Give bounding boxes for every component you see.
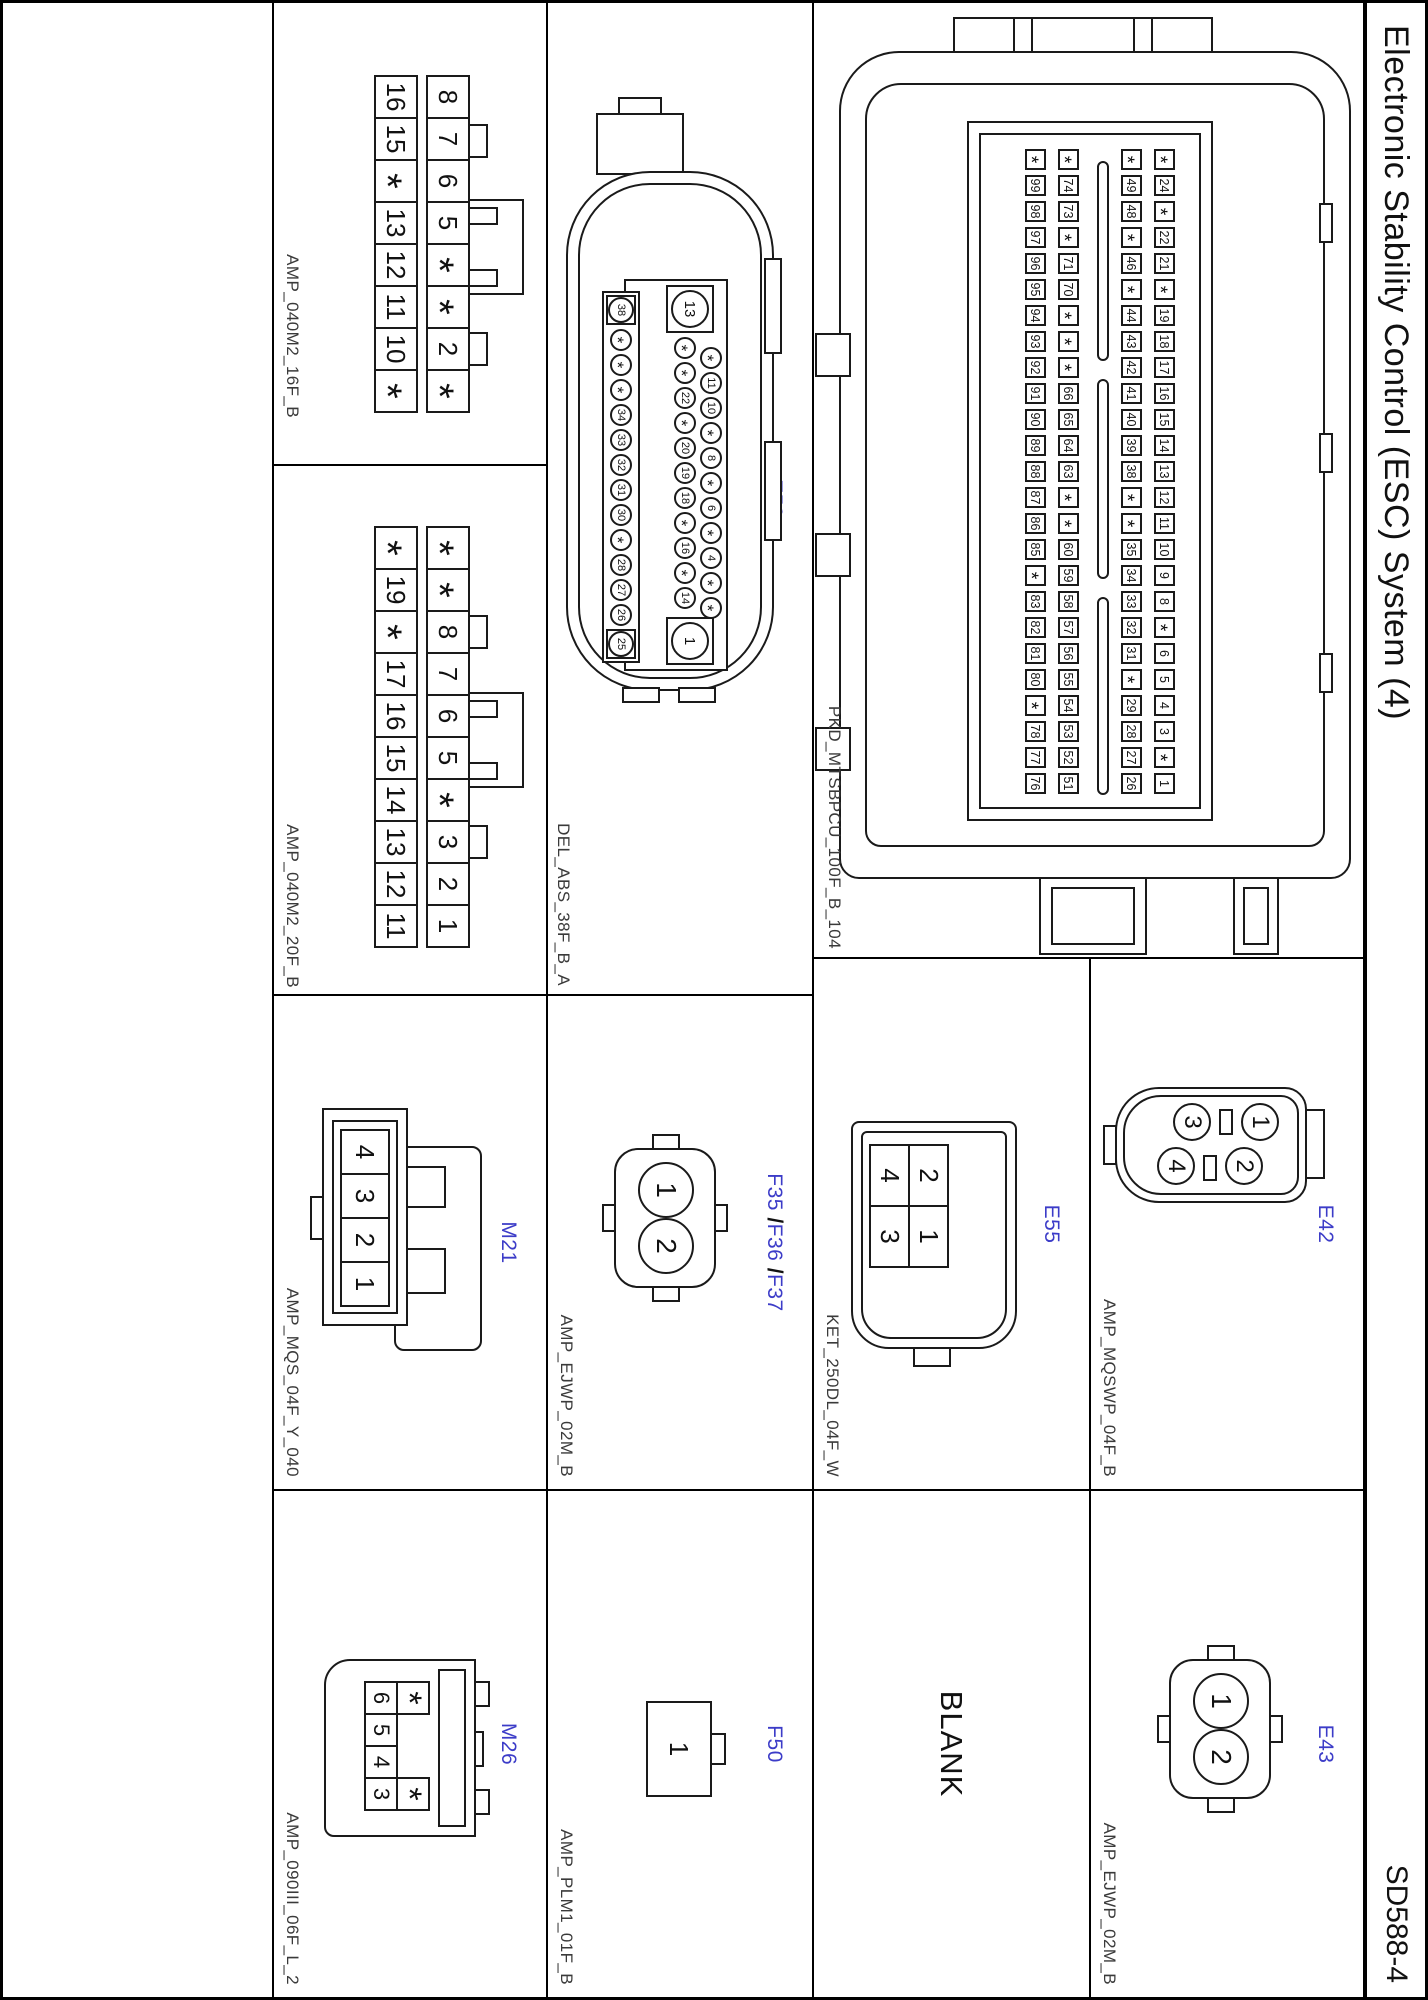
pin-blocked: *: [1058, 513, 1079, 534]
pin-19: 19: [674, 462, 696, 484]
m04a-top-tab: [468, 124, 488, 158]
pin-90: 90: [1025, 409, 1046, 430]
cell-clgb: CLG-B *24*2221*1918171615141312111098*65…: [812, 3, 1363, 959]
clgb-mount-leg-inner: [1051, 887, 1135, 945]
e42-key-slot: [1219, 1109, 1233, 1135]
clgb-key-slot: [1097, 379, 1109, 579]
clgb-top-clip: [1319, 433, 1333, 473]
pin-12: 12: [374, 243, 418, 287]
pin-16: 16: [374, 75, 418, 119]
document-code: SD588-4: [1379, 1865, 1413, 1997]
e43-bottom-tab: [1157, 1715, 1171, 1743]
connector-name-e42: E42: [1313, 959, 1337, 1489]
pin-34: 34: [610, 404, 632, 426]
pin-13: 13: [1154, 461, 1175, 482]
pin-22: 22: [674, 387, 696, 409]
m26-pin-row: 6543: [364, 1681, 398, 1811]
part-number-f50: AMP_PLM1_01F_B: [556, 1829, 576, 1985]
e59-pin-row-middle: **22*201918*16*14: [674, 337, 696, 609]
pin-3: 3: [364, 1777, 398, 1811]
e43-pin-1: 1: [1193, 1673, 1249, 1729]
pin-blocked: *: [1154, 279, 1175, 300]
pin-18: 18: [674, 487, 696, 509]
pin-13: 13: [374, 820, 418, 864]
page-title: Electronic Stability Control (ESC) Syste…: [1377, 3, 1416, 1865]
pin-blocked: *: [1154, 201, 1175, 222]
pin-18: 18: [1154, 331, 1175, 352]
pin-2: 2: [426, 862, 470, 906]
e59-right-tab: [678, 687, 716, 703]
pin-3: 3: [1154, 721, 1175, 742]
pin-8: 8: [700, 447, 722, 469]
part-number-f35: AMP_EJWP_02M_B: [556, 1315, 576, 1477]
m04b-key-notch: [468, 762, 498, 780]
part-number-clgb: PKD_MTSBPCU_100F_B_104: [824, 706, 844, 949]
pin-24: 24: [1154, 175, 1175, 196]
pin-16: 16: [674, 537, 696, 559]
clgb-pin-row-2: *4948*46*44434241403938**3534333231*2928…: [1121, 149, 1142, 794]
m26-top-tooth: [474, 1789, 490, 1815]
pin-88: 88: [1025, 461, 1046, 482]
e55-pin-4: 4: [869, 1144, 910, 1207]
pin-15: 15: [374, 736, 418, 780]
e42-key-slot: [1203, 1155, 1217, 1181]
pin-97: 97: [1025, 227, 1046, 248]
f50-top-notch: [710, 1733, 726, 1765]
cell-f35-f36-f37: F35 /F36 /F37 1 2 AMP_EJWP_02M_B: [546, 996, 812, 1491]
e55-pin-2: 2: [908, 1144, 949, 1207]
pin-33: 33: [610, 429, 632, 451]
e59-top-notch: [764, 258, 782, 354]
pin-blocked: *: [700, 522, 722, 544]
pin-99: 99: [1025, 175, 1046, 196]
e42-pin-4: 4: [1157, 1147, 1195, 1185]
part-number-m04b: AMP_040M2_20F_B: [282, 824, 302, 988]
pin-64: 64: [1058, 435, 1079, 456]
pin-16: 16: [374, 694, 418, 738]
pin-16: 16: [1154, 383, 1175, 404]
pin-11: 11: [700, 372, 722, 394]
cell-blank: BLANK: [812, 1491, 1089, 1997]
pin-42: 42: [1121, 357, 1142, 378]
clgb-pin-row-4: *999897969594939291908988878685*83828180…: [1025, 149, 1046, 794]
m04a-pin-row-bottom: 1615*13121110*: [374, 75, 418, 413]
pin-55: 55: [1058, 669, 1079, 690]
f50-pin-1: 1: [646, 1701, 712, 1797]
pin-17: 17: [1154, 357, 1175, 378]
pin-28: 28: [610, 554, 632, 576]
pin-80: 80: [1025, 669, 1046, 690]
pin-8: 8: [426, 610, 470, 654]
e55-lock-tab: [913, 1347, 951, 1367]
pin-91: 91: [1025, 383, 1046, 404]
e59-pin-1: 1: [666, 617, 714, 665]
e42-pin-1: 1: [1241, 1103, 1279, 1141]
pin-1: 1: [426, 904, 470, 948]
pin-11: 11: [1154, 513, 1175, 534]
pin-94: 94: [1025, 305, 1046, 326]
pin-blocked: *: [674, 412, 696, 434]
pin-blocked: *: [1121, 149, 1142, 170]
pin-73: 73: [1058, 201, 1079, 222]
pin-60: 60: [1058, 539, 1079, 560]
pin-74: 74: [1058, 175, 1079, 196]
pin-blocked: *: [426, 369, 470, 413]
pin-1: 1: [340, 1261, 390, 1307]
pin-blocked: *: [1121, 669, 1142, 690]
pin-6: 6: [364, 1681, 398, 1715]
cell-e59: E59 13 1 *1110*8*6*4** **22*201918*16*14…: [546, 3, 812, 996]
connector-name-f35-f36-f37: F35 /F36 /F37: [762, 996, 786, 1489]
e59-pin-38: 38: [606, 295, 636, 325]
pin-blocked: *: [426, 778, 470, 822]
pin-48: 48: [1121, 201, 1142, 222]
pin-blocked: *: [1121, 279, 1142, 300]
part-number-e59: DEL_ABS_38F_B_A: [553, 823, 573, 986]
pin-6: 6: [426, 159, 470, 203]
pin-blocked: *: [674, 512, 696, 534]
connector-name-e55: E55: [1039, 959, 1063, 1489]
e43-left-tab: [1207, 1645, 1235, 1661]
pin-41: 41: [1121, 383, 1142, 404]
pin-30: 30: [610, 504, 632, 526]
pin-blocked: *: [674, 562, 696, 584]
pin-7: 7: [426, 117, 470, 161]
pin-44: 44: [1121, 305, 1142, 326]
pin-4: 4: [1154, 695, 1175, 716]
clgb-key-slot: [1097, 161, 1109, 361]
pin-6: 6: [426, 694, 470, 738]
e59-pin-row-bottom: ***3433323130*282726: [610, 329, 632, 626]
pin-blocked: *: [700, 472, 722, 494]
pin-2: 2: [340, 1217, 390, 1263]
e59-mount-bracket-tab: [618, 97, 662, 115]
pin-blocked: *: [610, 379, 632, 401]
pin-3: 3: [340, 1173, 390, 1219]
pin-4: 4: [700, 547, 722, 569]
pin-21: 21: [1154, 253, 1175, 274]
name-f36: F36: [763, 1224, 786, 1262]
pin-blocked: *: [700, 597, 722, 619]
pin-12: 12: [1154, 487, 1175, 508]
part-number-m21: AMP_MQS_04F_Y_040: [282, 1288, 302, 1477]
e43-top-tab: [1269, 1715, 1283, 1743]
pin-blocked: *: [610, 529, 632, 551]
pin-32: 32: [1121, 617, 1142, 638]
f35-right-tab: [652, 1286, 680, 1302]
pin-8: 8: [1154, 591, 1175, 612]
pin-11: 11: [374, 904, 418, 948]
pin-81: 81: [1025, 643, 1046, 664]
pin-76: 76: [1025, 773, 1046, 794]
clgb-key-slot: [1097, 597, 1109, 795]
f35-top-tab: [714, 1204, 728, 1232]
clgb-side-bracket-rib: [1133, 17, 1153, 53]
e42-pin-3: 3: [1173, 1103, 1211, 1141]
pin-26: 26: [1121, 773, 1142, 794]
pin-blocked: *: [374, 526, 418, 570]
cell-m04b: M04-B **8765*321 *19*17161514131211 AMP_…: [272, 466, 546, 996]
pin-57: 57: [1058, 617, 1079, 638]
pin-58: 58: [1058, 591, 1079, 612]
e59-right-tab: [622, 687, 660, 703]
pin-43: 43: [1121, 331, 1142, 352]
e43-pin-2: 2: [1193, 1729, 1249, 1785]
m21-pin-row: 4321: [340, 1129, 390, 1307]
clgb-side-bracket-rib: [1013, 17, 1033, 53]
clgb-pin-row-3: *7473*7170***66656463**60595857565554535…: [1058, 149, 1079, 794]
pin-9: 9: [1154, 565, 1175, 586]
pin-blocked: *: [426, 568, 470, 612]
name-f37: F37: [763, 1274, 786, 1312]
e59-pin-13: 13: [666, 285, 714, 333]
pin-blocked: *: [700, 422, 722, 444]
pin-8: 8: [426, 75, 470, 119]
pin-82: 82: [1025, 617, 1046, 638]
pin-5: 5: [426, 736, 470, 780]
clgb-top-clip: [1319, 653, 1333, 693]
pin-13: 13: [374, 201, 418, 245]
pin-blocked: *: [1058, 305, 1079, 326]
pin-71: 71: [1058, 253, 1079, 274]
pin-32: 32: [610, 454, 632, 476]
pin-5: 5: [1154, 669, 1175, 690]
pin-blocked: *: [700, 572, 722, 594]
pin-blocked: *: [1121, 487, 1142, 508]
pin-38: 38: [1121, 461, 1142, 482]
m04b-pin-row-bottom: *19*17161514131211: [374, 526, 418, 948]
connector-name-f50: F50: [762, 1491, 786, 1997]
pin-46: 46: [1121, 253, 1142, 274]
pin-31: 31: [1121, 643, 1142, 664]
pin-54: 54: [1058, 695, 1079, 716]
m26-top-tooth: [474, 1681, 490, 1707]
f35-left-tab: [652, 1134, 680, 1150]
m04b-pin-row-top: **8765*321: [426, 526, 470, 948]
pin-14: 14: [374, 778, 418, 822]
pin-blocked: *: [374, 610, 418, 654]
pin-12: 12: [374, 862, 418, 906]
pin-40: 40: [1121, 409, 1142, 430]
e55-pin-1: 1: [908, 1205, 949, 1268]
cell-m21: M21 4321 AMP_MQS_04F_Y_040: [272, 996, 546, 1491]
pin-20: 20: [674, 437, 696, 459]
pin-77: 77: [1025, 747, 1046, 768]
pin-10: 10: [700, 397, 722, 419]
m26-housing-top-rib: [438, 1669, 466, 1827]
pin-blocked: *: [1025, 695, 1046, 716]
pin-39: 39: [1121, 435, 1142, 456]
pin-35: 35: [1121, 539, 1142, 560]
pin-19: 19: [1154, 305, 1175, 326]
pin-66: 66: [1058, 383, 1079, 404]
pin-83: 83: [1025, 591, 1046, 612]
pin-96: 96: [1025, 253, 1046, 274]
m04a-key-notch: [468, 269, 498, 287]
pin-29: 29: [1121, 695, 1142, 716]
clgb-bottom-clip: [815, 333, 851, 377]
clgb-top-clip: [1319, 203, 1333, 243]
pin-92: 92: [1025, 357, 1046, 378]
part-number-e43: AMP_EJWP_02M_B: [1099, 1823, 1119, 1985]
pin-blocked: *: [1058, 487, 1079, 508]
pin-blocked: *: [1121, 227, 1142, 248]
pin-blocked: *: [1058, 357, 1079, 378]
pin-blocked: *: [1058, 149, 1079, 170]
pin-27: 27: [1121, 747, 1142, 768]
pin-89: 89: [1025, 435, 1046, 456]
m04b-top-tab: [468, 825, 488, 859]
pin-blocked: *: [426, 285, 470, 329]
pin-blocked: *: [1025, 565, 1046, 586]
pin-blocked: *: [1121, 513, 1142, 534]
pin-15: 15: [1154, 409, 1175, 430]
pin-blocked: *: [1154, 149, 1175, 170]
pin-85: 85: [1025, 539, 1046, 560]
pin-blocked: *: [374, 369, 418, 413]
cell-m26: M26 * * 6543 AMP_090III_06F_L_2: [272, 1491, 546, 1997]
blank-label: BLANK: [814, 1491, 1089, 1997]
m04b-key-notch: [468, 700, 498, 718]
pin-blocked: *: [674, 362, 696, 384]
pin-27: 27: [610, 579, 632, 601]
cell-empty-band: [3, 3, 272, 1997]
part-number-m26: AMP_090III_06F_L_2: [282, 1812, 302, 1985]
m26-pin-blocked: *: [396, 1681, 430, 1715]
e42-top-tab: [1305, 1109, 1325, 1179]
pin-3: 3: [426, 820, 470, 864]
page: { "header": { "title": "Electronic Stabi…: [0, 0, 1428, 2000]
cell-f50: F50 1 AMP_PLM1_01F_B: [546, 1491, 812, 1997]
part-number-m04a: AMP_040M2_16F_B: [282, 254, 302, 418]
connector-name-m26: M26: [496, 1491, 520, 1997]
pin-11: 11: [374, 285, 418, 329]
pin-56: 56: [1058, 643, 1079, 664]
pin-blocked: *: [1025, 149, 1046, 170]
pin-17: 17: [374, 652, 418, 696]
pin-53: 53: [1058, 721, 1079, 742]
pin-65: 65: [1058, 409, 1079, 430]
part-number-e55: KET_250DL_04F_W: [822, 1314, 842, 1477]
m04a-pin-row-top: 8765**2*: [426, 75, 470, 413]
pin-1: 1: [1154, 773, 1175, 794]
pin-86: 86: [1025, 513, 1046, 534]
pin-blocked: *: [1058, 227, 1079, 248]
e42-bottom-tab: [1103, 1125, 1117, 1165]
pin-2: 2: [426, 327, 470, 371]
pin-33: 33: [1121, 591, 1142, 612]
cell-m04a: M04-A 8765**2* 1615*13121110* AMP_040M2_…: [272, 3, 546, 466]
pin-6: 6: [1154, 643, 1175, 664]
pin-28: 28: [1121, 721, 1142, 742]
cell-e55: E55 2 1 4 3 KET_250DL_04F_W: [812, 959, 1089, 1491]
pin-26: 26: [610, 604, 632, 626]
e59-mount-bracket: [596, 113, 684, 175]
connector-name-m21: M21: [496, 996, 520, 1489]
pin-22: 22: [1154, 227, 1175, 248]
pin-14: 14: [674, 587, 696, 609]
pin-52: 52: [1058, 747, 1079, 768]
e59-pin-row-upper: *1110*8*6*4**: [700, 347, 722, 619]
clgb-mount-leg-inner: [1243, 887, 1269, 945]
pin-4: 4: [340, 1129, 390, 1175]
e59-pin-25: 25: [606, 629, 636, 659]
e55-pin-3: 3: [869, 1205, 910, 1268]
m21-bottom-tab: [310, 1196, 324, 1240]
pin-4: 4: [364, 1745, 398, 1779]
cell-e42: E42 1 2 3 4 AMP_MQSWP_04F_B: [1089, 959, 1363, 1491]
m04a-top-tab: [468, 332, 488, 366]
pin-10: 10: [374, 327, 418, 371]
pin-blocked: *: [426, 526, 470, 570]
pin-blocked: *: [1154, 747, 1175, 768]
e42-pin-2: 2: [1225, 1147, 1263, 1185]
pin-93: 93: [1025, 331, 1046, 352]
pin-87: 87: [1025, 487, 1046, 508]
f35-bottom-tab: [602, 1204, 616, 1232]
e43-right-tab: [1207, 1797, 1235, 1813]
pin-10: 10: [1154, 539, 1175, 560]
e59-top-notch: [764, 441, 782, 541]
pin-51: 51: [1058, 773, 1079, 794]
clgb-side-bracket: [953, 17, 1213, 53]
pin-5: 5: [364, 1713, 398, 1747]
pin-blocked: *: [674, 337, 696, 359]
pin-63: 63: [1058, 461, 1079, 482]
pin-blocked: *: [610, 329, 632, 351]
pin-blocked: *: [1058, 331, 1079, 352]
pin-31: 31: [610, 479, 632, 501]
m26-pin-blocked: *: [396, 1777, 430, 1811]
pin-95: 95: [1025, 279, 1046, 300]
pin-blocked: *: [700, 347, 722, 369]
pin-98: 98: [1025, 201, 1046, 222]
pin-5: 5: [426, 201, 470, 245]
m04a-key-notch: [468, 207, 498, 225]
f35-pin-2: 2: [638, 1218, 694, 1274]
clgb-pin-row-1: *24*2221*1918171615141312111098*6543*1: [1154, 149, 1175, 794]
pin-49: 49: [1121, 175, 1142, 196]
pin-blocked: *: [1154, 617, 1175, 638]
pin-78: 78: [1025, 721, 1046, 742]
pin-19: 19: [374, 568, 418, 612]
cell-e43: E43 1 2 AMP_EJWP_02M_B: [1089, 1491, 1363, 1997]
pin-14: 14: [1154, 435, 1175, 456]
f35-pin-1: 1: [638, 1162, 694, 1218]
pin-59: 59: [1058, 565, 1079, 586]
connector-name-e43: E43: [1313, 1491, 1337, 1997]
pin-70: 70: [1058, 279, 1079, 300]
pin-7: 7: [426, 652, 470, 696]
pin-blocked: *: [426, 243, 470, 287]
m04b-top-tab: [468, 615, 488, 649]
pin-15: 15: [374, 117, 418, 161]
clgb-bottom-clip: [815, 533, 851, 577]
title-bar: Electronic Stability Control (ESC) Syste…: [1363, 3, 1425, 1997]
pin-blocked: *: [374, 159, 418, 203]
name-f35: F35: [763, 1173, 786, 1211]
part-number-e42: AMP_MQSWP_04F_B: [1099, 1299, 1119, 1477]
pin-6: 6: [700, 497, 722, 519]
diagram-sheet: Electronic Stability Control (ESC) Syste…: [0, 0, 1428, 2000]
pin-34: 34: [1121, 565, 1142, 586]
pin-blocked: *: [610, 354, 632, 376]
